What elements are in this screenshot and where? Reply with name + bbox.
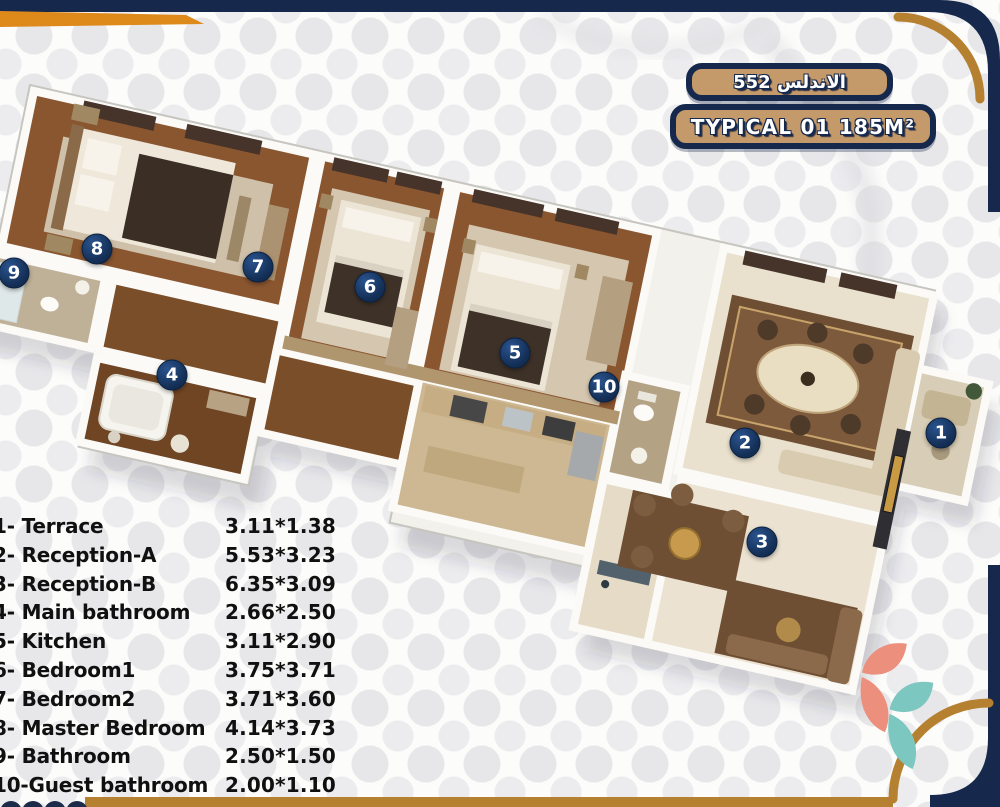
legend-room-name: 2- Reception-A <box>0 543 225 567</box>
legend-room-dims: 2.66*2.50 <box>225 600 336 624</box>
room-legend: 1- Terrace 3.11*1.38 2- Reception-A 5.53… <box>0 514 338 802</box>
legend-room-name: 8- Master Bedroom <box>0 716 225 740</box>
room-marker-terrace: 1 <box>926 418 957 449</box>
legend-row: 5- Kitchen 3.11*2.90 <box>0 629 338 658</box>
room-marker-number: 3 <box>756 532 769 553</box>
room-marker-main-bathroom: 4 <box>157 360 188 391</box>
room-marker-number: 9 <box>8 263 21 284</box>
legend-room-name: 1- Terrace <box>0 514 225 538</box>
legend-room-dims: 3.11*2.90 <box>225 629 336 653</box>
room-marker-number: 8 <box>91 239 104 260</box>
room-marker-master-bedroom: 8 <box>82 234 113 265</box>
legend-room-name: 5- Kitchen <box>0 629 225 653</box>
legend-room-name: 9- Bathroom <box>0 744 225 768</box>
room-marker-number: 10 <box>591 377 616 398</box>
legend-row: 3- Reception-B 6.35*3.09 <box>0 572 338 601</box>
brand-logo <box>861 643 934 769</box>
unit-type-badge: TYPICAL 01 185M² <box>670 104 936 149</box>
legend-row: 2- Reception-A 5.53*3.23 <box>0 543 338 572</box>
room-marker-reception-b: 3 <box>747 527 778 558</box>
floor-plan-poster: الاندلس 552 TYPICAL 01 185M² 1- Terrace … <box>0 0 1000 807</box>
room-marker-bedroom2: 7 <box>243 252 274 283</box>
legend-row: 4- Main bathroom 2.66*2.50 <box>0 600 338 629</box>
legend-row: 6- Bedroom1 3.75*3.71 <box>0 658 338 687</box>
legend-row: 7- Bedroom2 3.71*3.60 <box>0 687 338 716</box>
legend-row: 10-Guest bathroom 2.00*1.10 <box>0 773 338 802</box>
legend-room-name: 4- Main bathroom <box>0 600 225 624</box>
legend-room-dims: 2.00*1.10 <box>225 773 336 797</box>
legend-row: 8- Master Bedroom 4.14*3.73 <box>0 716 338 745</box>
room-marker-number: 2 <box>739 433 752 454</box>
legend-room-dims: 3.11*1.38 <box>225 514 336 538</box>
room-marker-bedroom1: 6 <box>355 272 386 303</box>
legend-room-dims: 4.14*3.73 <box>225 716 336 740</box>
legend-room-name: 10-Guest bathroom <box>0 773 225 797</box>
legend-room-dims: 3.75*3.71 <box>225 658 336 682</box>
room-marker-reception-a: 2 <box>730 428 761 459</box>
legend-room-dims: 2.50*1.50 <box>225 744 336 768</box>
legend-row: 9- Bathroom 2.50*1.50 <box>0 744 338 773</box>
orange-stripe <box>0 11 204 27</box>
legend-room-name: 3- Reception-B <box>0 572 225 596</box>
room-marker-number: 1 <box>935 423 948 444</box>
frame-bottom-right-navy <box>930 565 1000 807</box>
room-marker-number: 5 <box>509 343 522 364</box>
room-marker-number: 7 <box>252 257 265 278</box>
room-marker-number: 6 <box>364 277 377 298</box>
project-name-badge: الاندلس 552 <box>686 63 893 101</box>
room-marker-kitchen: 5 <box>500 338 531 369</box>
legend-row: 1- Terrace 3.11*1.38 <box>0 514 338 543</box>
legend-room-dims: 6.35*3.09 <box>225 572 336 596</box>
legend-room-name: 7- Bedroom2 <box>0 687 225 711</box>
legend-room-name: 6- Bedroom1 <box>0 658 225 682</box>
room-marker-guest-bathroom: 10 <box>589 372 620 403</box>
room-marker-number: 4 <box>166 365 179 386</box>
gold-arc-top <box>898 17 980 99</box>
legend-room-dims: 5.53*3.23 <box>225 543 336 567</box>
room-marker-bathroom: 9 <box>0 258 30 289</box>
legend-room-dims: 3.71*3.60 <box>225 687 336 711</box>
